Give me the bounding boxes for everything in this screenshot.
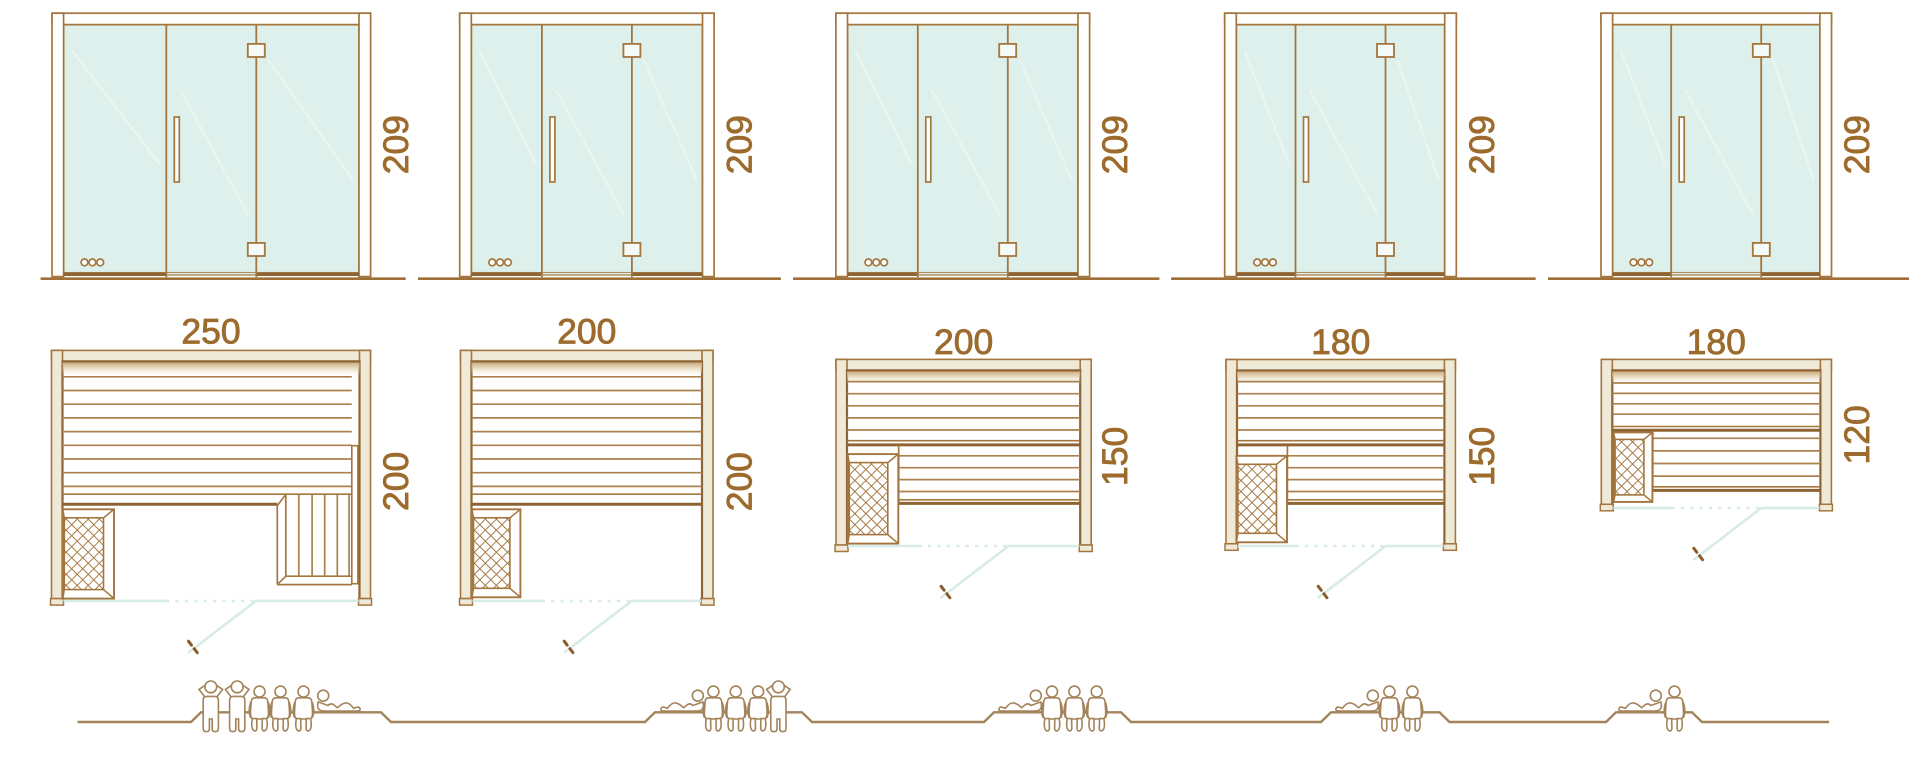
svg-text:209: 209 <box>376 115 416 174</box>
svg-text:150: 150 <box>1462 427 1502 486</box>
svg-text:120: 120 <box>1837 405 1877 464</box>
svg-text:200: 200 <box>557 312 616 352</box>
svg-text:200: 200 <box>720 452 760 511</box>
svg-text:200: 200 <box>934 322 993 362</box>
svg-text:209: 209 <box>1462 115 1502 174</box>
svg-text:180: 180 <box>1311 322 1370 362</box>
svg-text:209: 209 <box>720 115 760 174</box>
svg-text:150: 150 <box>1095 427 1135 486</box>
svg-text:200: 200 <box>376 452 416 511</box>
svg-text:180: 180 <box>1687 322 1746 362</box>
svg-text:209: 209 <box>1095 115 1135 174</box>
svg-text:209: 209 <box>1837 115 1877 174</box>
svg-text:250: 250 <box>181 312 240 352</box>
